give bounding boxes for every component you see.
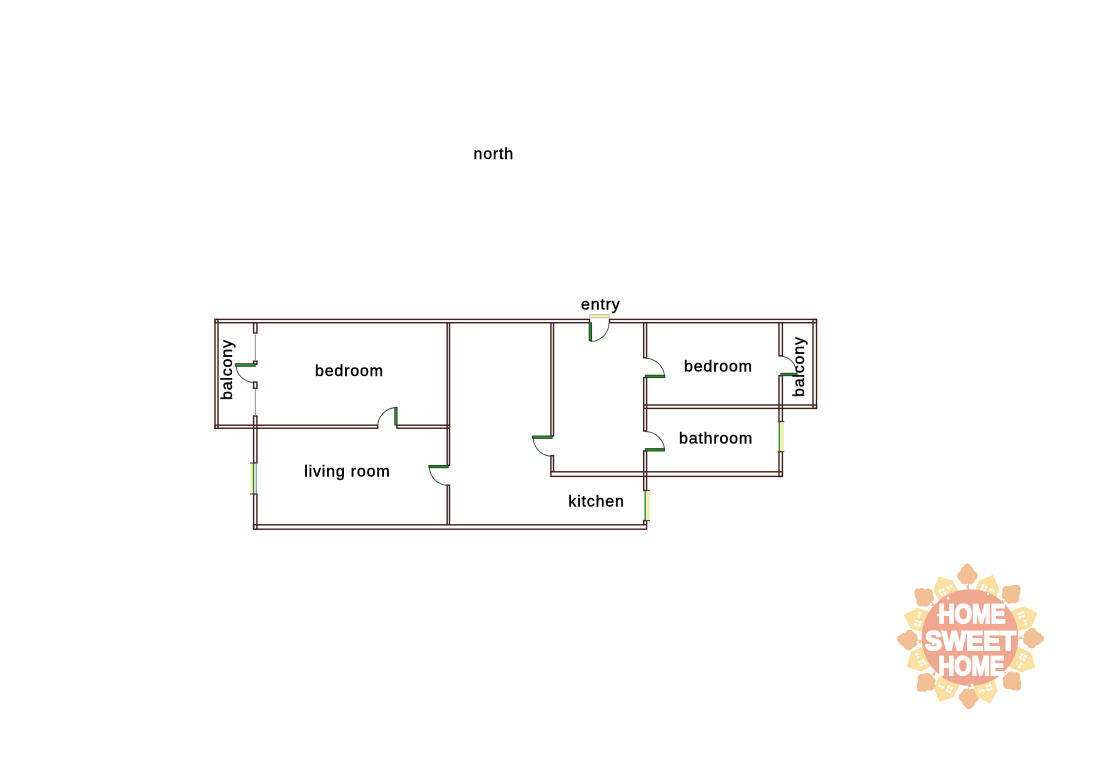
svg-text:entry: entry [581,297,621,314]
svg-text:balcony: balcony [791,336,808,397]
svg-text:bedroom: bedroom [684,359,753,376]
svg-text:north: north [474,146,514,163]
svg-text:HOME: HOME [939,599,1006,629]
svg-text:HOME: HOME [939,651,1005,681]
svg-text:bathroom: bathroom [679,430,753,447]
svg-text:living room: living room [304,464,390,481]
svg-text:bedroom: bedroom [315,363,384,380]
svg-text:balcony: balcony [219,339,236,400]
svg-text:kitchen: kitchen [568,493,624,510]
